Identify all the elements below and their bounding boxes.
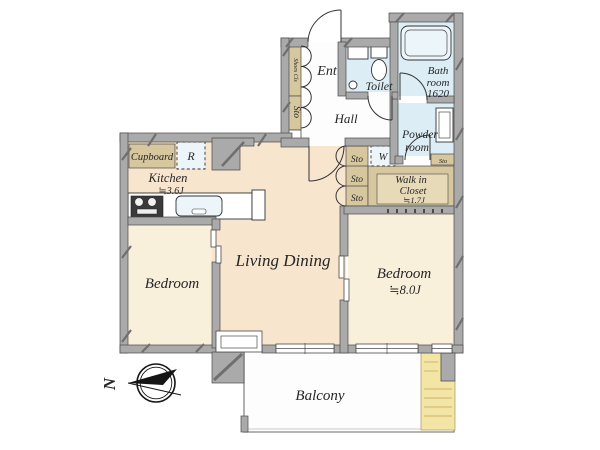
kitchen-size: ≒3.6J <box>158 186 184 197</box>
bedroom-right-size: ≒8.0J <box>389 283 422 297</box>
ent-label: Ent <box>316 64 338 79</box>
closet-rail-ticks <box>388 209 442 213</box>
kitchen-label: Kitchen <box>148 171 188 185</box>
cupboard-label: Cupboard <box>131 152 174 163</box>
sto-1-label: Sto <box>351 155 363 165</box>
bathtub <box>401 26 451 60</box>
entrance-door <box>308 10 341 42</box>
window-bay <box>216 331 262 352</box>
toilet-hand-basin <box>349 81 357 89</box>
kitchen-counter <box>128 190 265 220</box>
compass-north-label: N <box>100 377 119 391</box>
refrigerator-label: R <box>186 149 195 163</box>
powder-label-1: Powder <box>401 129 438 141</box>
walkin-size: ≒1.7J <box>403 195 426 205</box>
counter-end-panel <box>252 190 265 220</box>
sto-2-label: Sto <box>351 175 363 185</box>
entry-sto-label: Sto <box>291 106 301 118</box>
walkin-label-1: Walk in <box>395 175 426 186</box>
toilet-tank <box>371 46 387 58</box>
compass-icon: N <box>100 364 181 402</box>
hall-label: Hall <box>333 111 358 126</box>
balcony-label: Balcony <box>295 388 344 404</box>
toilet-label: Toilet <box>366 79 394 93</box>
floor-plan: Ent Hall Toilet Bath room 1620 Powder ro… <box>0 0 600 450</box>
powder-label-2: room <box>405 142 429 154</box>
powder-sto-label: Sto <box>439 158 448 165</box>
powder-doorway <box>403 156 431 166</box>
living-dining-label: Living Dining <box>235 251 331 270</box>
vanity-unit <box>436 108 453 142</box>
floor-plan-drawing: Ent Hall Toilet Bath room 1620 Powder ro… <box>0 0 600 450</box>
shoes-closet-label: Shoes Cls <box>292 58 298 82</box>
sto-3-label: Sto <box>351 194 363 204</box>
bath-label-1: Bath <box>428 65 449 77</box>
bedroom-right-label: Bedroom <box>377 266 432 282</box>
bath-label-3: 1620 <box>427 88 450 100</box>
bedroom-left-label: Bedroom <box>145 276 200 292</box>
toilet-bowl <box>372 60 387 81</box>
washer-label: W <box>379 152 389 163</box>
